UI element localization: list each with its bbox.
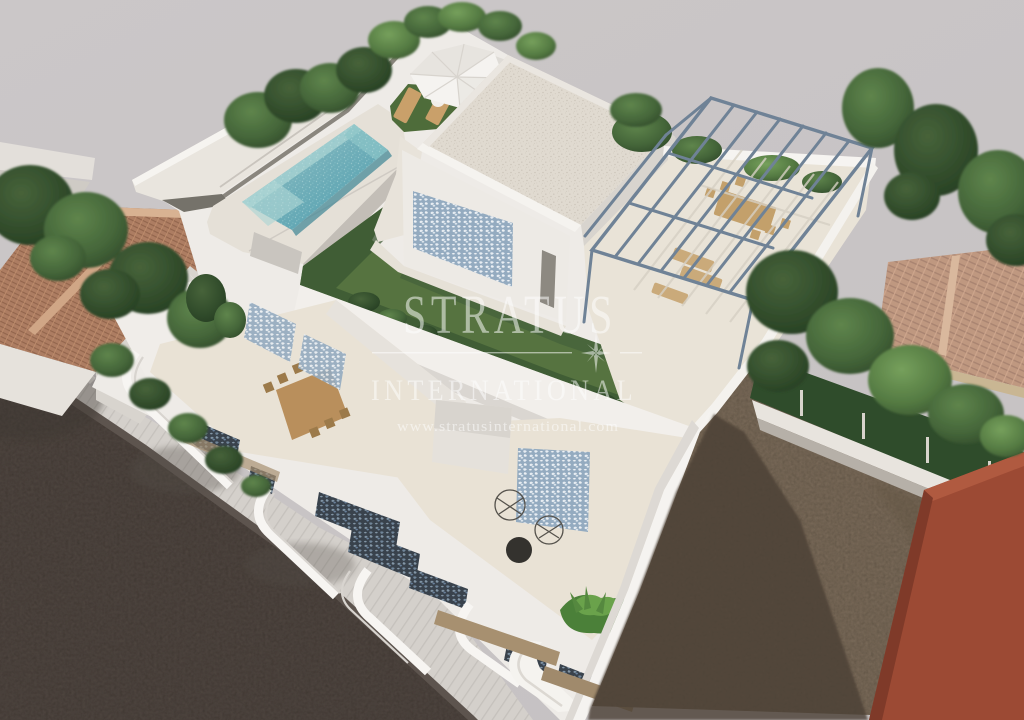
- svg-text:STRATUS: STRATUS: [403, 284, 617, 345]
- svg-text:www.stratusinternational.com: www.stratusinternational.com: [397, 419, 619, 435]
- svg-text:INTERNATIONAL: INTERNATIONAL: [371, 374, 637, 407]
